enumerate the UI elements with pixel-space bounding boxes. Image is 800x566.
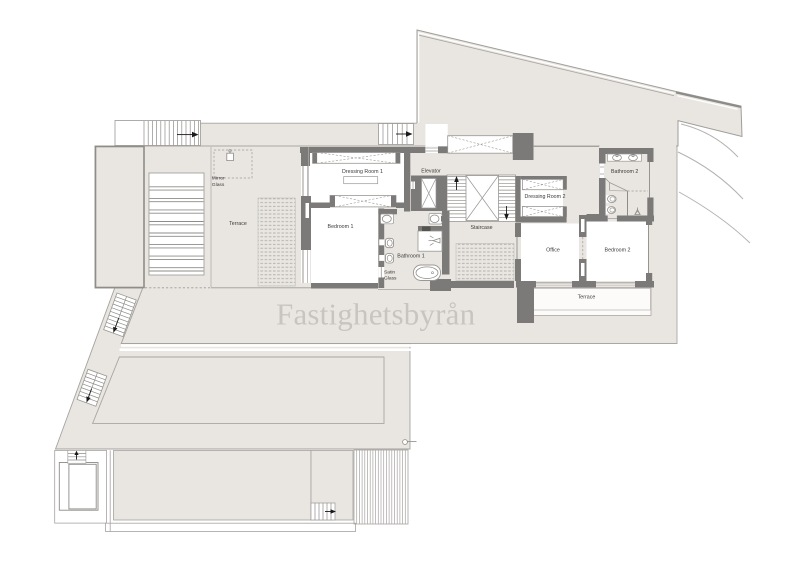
svg-text:Staircase: Staircase: [470, 225, 492, 231]
svg-text:Mirror: Mirror: [212, 175, 225, 181]
svg-text:Terrace: Terrace: [578, 294, 596, 300]
svg-text:Terrace: Terrace: [229, 221, 247, 227]
svg-text:Bedroom 1: Bedroom 1: [328, 224, 354, 230]
svg-text:Glass: Glass: [384, 276, 397, 282]
svg-text:Satin: Satin: [384, 270, 395, 276]
svg-text:Dressing Room 1: Dressing Room 1: [342, 169, 383, 175]
svg-text:Fastighetsbyrån: Fastighetsbyrån: [276, 297, 476, 332]
svg-text:Dressing Room 2: Dressing Room 2: [525, 194, 566, 200]
svg-text:Glass: Glass: [212, 182, 225, 188]
svg-text:Elevator: Elevator: [421, 169, 441, 175]
svg-text:Bathroom 2: Bathroom 2: [611, 169, 638, 175]
svg-text:Office: Office: [546, 248, 560, 254]
svg-text:Bathroom 1: Bathroom 1: [397, 253, 424, 259]
svg-text:Bedroom 2: Bedroom 2: [605, 248, 631, 254]
